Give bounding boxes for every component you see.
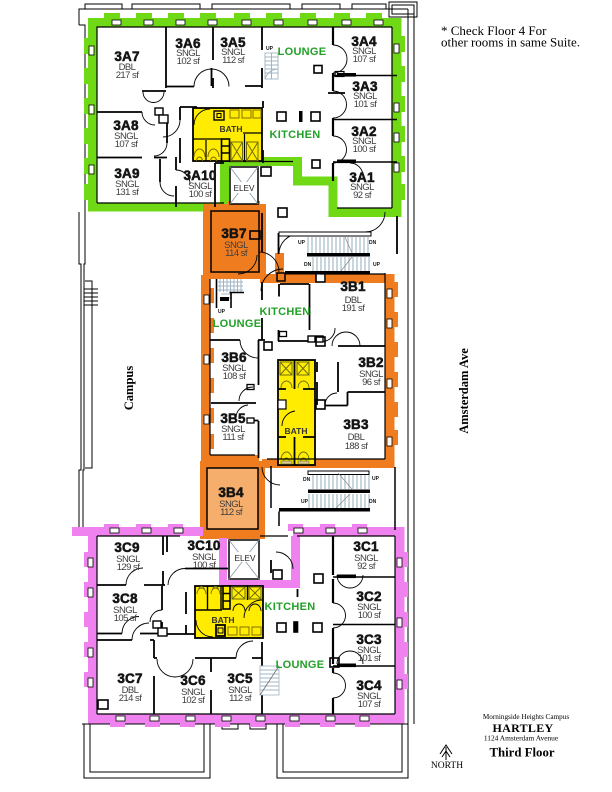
svg-text:DN: DN xyxy=(369,240,377,246)
svg-text:BATH: BATH xyxy=(212,615,235,625)
svg-text:UP: UP xyxy=(266,46,274,52)
svg-text:LOUNGE: LOUNGE xyxy=(276,659,325,671)
svg-text:217 sf: 217 sf xyxy=(116,70,139,81)
svg-text:100 sf: 100 sf xyxy=(353,144,376,155)
svg-text:UP: UP xyxy=(373,262,381,268)
svg-text:114 sf: 114 sf xyxy=(225,248,248,259)
svg-text:3B1: 3B1 xyxy=(340,279,366,294)
svg-text:92 sf: 92 sf xyxy=(353,190,372,201)
svg-text:3B7: 3B7 xyxy=(221,226,246,241)
svg-text:other rooms in same Suite.: other rooms in same Suite. xyxy=(441,35,580,50)
svg-text:107 sf: 107 sf xyxy=(353,54,376,65)
svg-text:107 sf: 107 sf xyxy=(115,139,138,150)
svg-text:108 sf: 108 sf xyxy=(223,371,246,382)
svg-text:3B2: 3B2 xyxy=(358,355,383,370)
svg-text:107 sf: 107 sf xyxy=(358,699,381,710)
svg-text:BATH: BATH xyxy=(220,124,243,134)
svg-text:Morningside Heights Campus: Morningside Heights Campus xyxy=(483,713,569,721)
svg-text:DN: DN xyxy=(369,499,377,505)
svg-text:3C6: 3C6 xyxy=(180,673,206,688)
svg-text:BATH: BATH xyxy=(285,426,308,436)
svg-text:LOUNGE: LOUNGE xyxy=(278,46,327,58)
svg-text:KITCHEN: KITCHEN xyxy=(270,129,321,141)
svg-text:Amsterdam Ave: Amsterdam Ave xyxy=(457,348,471,434)
svg-text:3C1: 3C1 xyxy=(353,539,379,554)
svg-text:111 sf: 111 sf xyxy=(222,432,244,443)
svg-text:112 sf: 112 sf xyxy=(229,693,252,704)
svg-text:Campus: Campus xyxy=(122,366,136,411)
svg-text:131 sf: 131 sf xyxy=(116,187,139,198)
svg-text:214 sf: 214 sf xyxy=(119,693,142,704)
svg-text:96 sf: 96 sf xyxy=(362,377,381,388)
svg-text:1124 Amsterdam Avenue: 1124 Amsterdam Avenue xyxy=(484,734,559,743)
svg-text:DN: DN xyxy=(304,262,312,268)
svg-text:NORTH: NORTH xyxy=(431,761,463,771)
svg-text:UP: UP xyxy=(301,499,309,505)
svg-text:3C9: 3C9 xyxy=(114,540,139,555)
svg-text:UP: UP xyxy=(372,476,380,482)
svg-text:101 sf: 101 sf xyxy=(354,99,377,110)
svg-text:ELEV: ELEV xyxy=(234,184,255,193)
svg-text:191 sf: 191 sf xyxy=(342,303,365,314)
svg-text:100 sf: 100 sf xyxy=(189,189,212,200)
svg-text:DN: DN xyxy=(303,477,311,483)
svg-text:3C10: 3C10 xyxy=(187,538,220,553)
svg-text:102 sf: 102 sf xyxy=(177,56,200,67)
svg-text:KITCHEN: KITCHEN xyxy=(265,601,316,613)
svg-text:112 sf: 112 sf xyxy=(222,55,245,66)
svg-text:100 sf: 100 sf xyxy=(193,560,216,571)
svg-text:3C8: 3C8 xyxy=(112,591,138,606)
svg-text:92 sf: 92 sf xyxy=(357,561,376,572)
svg-text:3C5: 3C5 xyxy=(227,671,253,686)
svg-text:112 sf: 112 sf xyxy=(220,507,243,518)
svg-text:LOUNGE: LOUNGE xyxy=(213,318,262,330)
svg-text:3B4: 3B4 xyxy=(218,485,244,500)
svg-text:101 sf: 101 sf xyxy=(358,653,381,664)
svg-text:3B3: 3B3 xyxy=(343,417,369,432)
svg-text:102 sf: 102 sf xyxy=(182,695,205,706)
svg-text:105 sf: 105 sf xyxy=(114,613,137,624)
svg-text:KITCHEN: KITCHEN xyxy=(260,306,311,318)
svg-text:129 sf: 129 sf xyxy=(117,562,140,573)
svg-text:ELEV: ELEV xyxy=(235,554,256,563)
svg-text:UP: UP xyxy=(218,309,226,315)
svg-text:Third Floor: Third Floor xyxy=(489,746,554,760)
svg-text:3C7: 3C7 xyxy=(117,671,142,686)
svg-text:UP: UP xyxy=(298,240,306,246)
svg-text:188 sf: 188 sf xyxy=(345,441,368,452)
svg-text:100 sf: 100 sf xyxy=(358,610,381,621)
